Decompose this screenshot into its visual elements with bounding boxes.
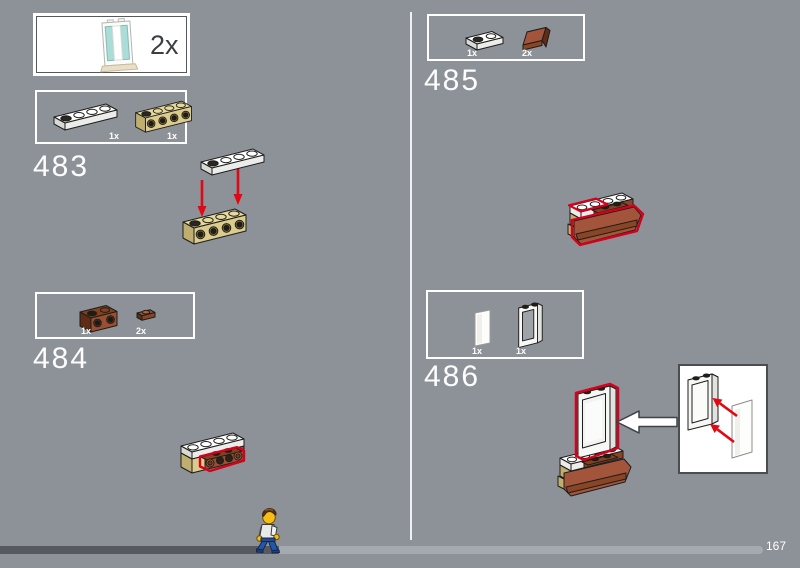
insert-direction-arrow — [614, 408, 680, 436]
progress-bar-filled — [0, 546, 279, 554]
assembly-484-diagram — [168, 432, 268, 500]
progress-bar-remaining — [279, 546, 763, 554]
part-count: 1x — [167, 132, 177, 141]
part-count: 2x — [522, 49, 532, 58]
callout-glass-insertion-diagram — [680, 366, 766, 472]
part-count: 2x — [136, 327, 146, 336]
submodel-multiplier-box: 2x — [33, 13, 190, 76]
parts-box-485: 1x 2x — [427, 14, 585, 61]
part-reddish-brown-plate-1x1 — [135, 305, 155, 322]
page-number: 167 — [766, 540, 786, 552]
step-number-485: 485 — [424, 66, 480, 96]
assembly-483-diagram — [172, 146, 272, 256]
submodel-count-label: 2x — [150, 32, 179, 59]
assembly-486-diagram — [552, 378, 667, 503]
part-count: 1x — [516, 347, 526, 356]
part-count: 1x — [472, 347, 482, 356]
parts-box-483: 1x 1x — [35, 90, 187, 144]
column-divider — [410, 12, 412, 540]
part-count: 1x — [109, 132, 119, 141]
step-number-486: 486 — [424, 362, 480, 392]
part-white-door-frame-with-panes — [97, 18, 137, 72]
part-tan-brick-1x4-holes — [133, 98, 195, 138]
part-white-window-frame-1x2x2 — [514, 296, 546, 352]
step-number-484: 484 — [33, 344, 89, 374]
instruction-page: 2x 1x — [0, 0, 800, 568]
part-glass-panel — [470, 307, 494, 349]
part-count: 1x — [467, 49, 477, 58]
parts-box-484: 1x 2x — [35, 292, 195, 339]
step-number-483: 483 — [33, 152, 89, 182]
callout-box-486 — [678, 364, 768, 474]
assembly-485-diagram — [558, 184, 653, 262]
parts-box-486: 1x 1x — [426, 290, 584, 359]
part-count: 1x — [81, 327, 91, 336]
minifigure-progress-marker — [250, 506, 290, 554]
